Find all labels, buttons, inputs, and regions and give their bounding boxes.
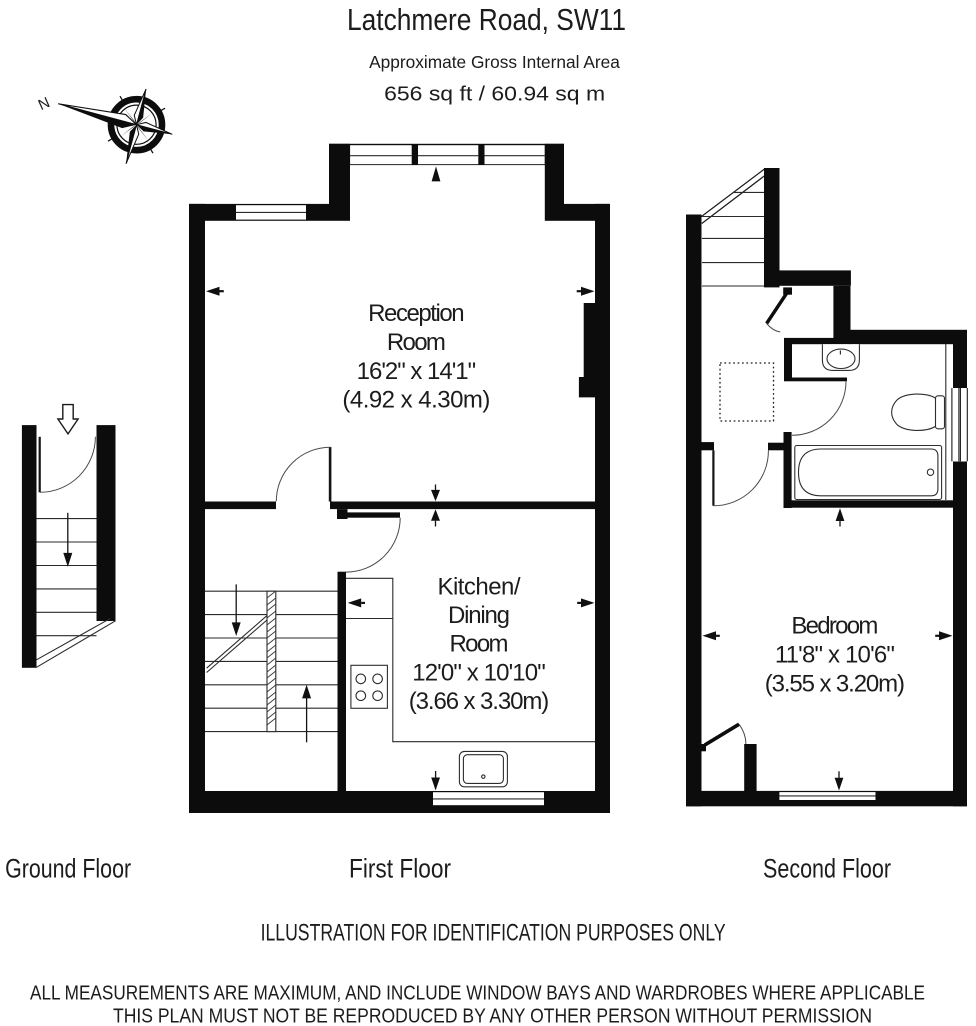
svg-text:THIS PLAN MUST NOT BE REPRODUC: THIS PLAN MUST NOT BE REPRODUCED BY ANY … xyxy=(113,1004,872,1026)
svg-text:12'0" x 10'10": 12'0" x 10'10" xyxy=(412,659,546,686)
svg-text:ILLUSTRATION FOR IDENTIFICATIO: ILLUSTRATION FOR IDENTIFICATION PURPOSES… xyxy=(261,919,726,946)
svg-text:Bedroom: Bedroom xyxy=(791,613,878,640)
svg-text:Latchmere Road, SW11: Latchmere Road, SW11 xyxy=(347,4,626,37)
svg-text:11'8" x 10'6": 11'8" x 10'6" xyxy=(775,642,895,669)
svg-text:Dining: Dining xyxy=(448,602,510,629)
svg-text:Room: Room xyxy=(450,631,509,658)
svg-text:(3.66 x 3.30m): (3.66 x 3.30m) xyxy=(409,688,550,715)
svg-text:Reception: Reception xyxy=(368,300,465,327)
svg-text:656 sq ft / 60.94 sq m: 656 sq ft / 60.94 sq m xyxy=(384,84,605,106)
svg-text:Second Floor: Second Floor xyxy=(763,854,891,884)
svg-text:ALL MEASUREMENTS ARE MAXIMUM,: ALL MEASUREMENTS ARE MAXIMUM, AND INCLUD… xyxy=(30,982,925,1005)
svg-text:16'2" x 14'1": 16'2" x 14'1" xyxy=(357,358,477,385)
svg-text:Room: Room xyxy=(387,329,446,356)
svg-text:(3.55 x 3.20m): (3.55 x 3.20m) xyxy=(765,670,905,697)
svg-text:First Floor: First Floor xyxy=(349,854,451,884)
svg-text:Ground Floor: Ground Floor xyxy=(5,854,131,884)
svg-text:(4.92 x 4.30m): (4.92 x 4.30m) xyxy=(342,387,490,414)
svg-text:Kitchen/: Kitchen/ xyxy=(438,573,521,600)
svg-text:Approximate Gross Internal Are: Approximate Gross Internal Area xyxy=(369,52,620,72)
